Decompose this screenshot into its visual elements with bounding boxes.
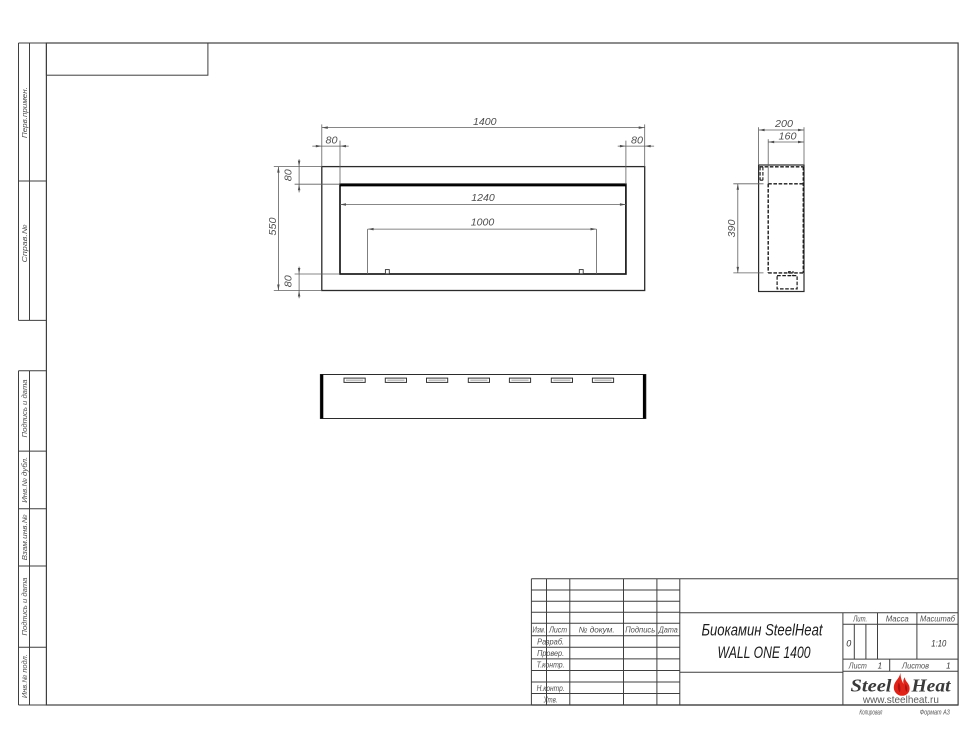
svg-text:1: 1 — [946, 661, 950, 670]
svg-text:1: 1 — [878, 661, 882, 670]
svg-text:Подпись и дата: Подпись и дата — [21, 577, 29, 635]
svg-text:80: 80 — [283, 169, 294, 181]
svg-text:Т.контр.: Т.контр. — [537, 661, 565, 670]
svg-text:550: 550 — [268, 217, 279, 235]
svg-text:Взам.инв.№: Взам.инв.№ — [22, 514, 29, 560]
svg-text:160: 160 — [779, 132, 797, 143]
svg-text:0: 0 — [846, 639, 851, 649]
svg-text:Листов: Листов — [901, 661, 929, 670]
svg-text:80: 80 — [326, 136, 338, 147]
svg-text:№ докум.: № докум. — [579, 626, 615, 635]
svg-text:Утв.: Утв. — [543, 695, 558, 704]
svg-text:1:10: 1:10 — [931, 638, 947, 649]
svg-text:Разраб.: Разраб. — [537, 637, 564, 646]
svg-text:Копировал: Копировал — [859, 710, 882, 717]
svg-text:Изм.: Изм. — [533, 626, 546, 635]
svg-text:WALL ONE 1400: WALL ONE 1400 — [718, 644, 811, 662]
svg-text:www.steelheat.ru: www.steelheat.ru — [862, 695, 939, 706]
svg-text:1400: 1400 — [473, 117, 497, 128]
svg-text:Лит.: Лит. — [852, 615, 867, 624]
svg-text:1000: 1000 — [471, 218, 495, 229]
svg-text:Лист: Лист — [548, 626, 567, 635]
svg-text:Дата: Дата — [658, 626, 678, 635]
svg-text:Масса: Масса — [886, 615, 910, 624]
svg-text:Steel: Steel — [851, 676, 892, 696]
svg-text:Провер.: Провер. — [537, 649, 564, 658]
svg-text:Heat: Heat — [910, 676, 951, 696]
svg-text:1240: 1240 — [471, 193, 495, 204]
svg-text:80: 80 — [283, 275, 294, 287]
svg-text:Подпись: Подпись — [625, 626, 655, 635]
svg-text:80: 80 — [631, 136, 643, 147]
svg-text:Формат А3: Формат А3 — [920, 710, 950, 717]
svg-text:200: 200 — [774, 119, 793, 130]
svg-text:Масштаб: Масштаб — [920, 615, 955, 624]
svg-text:Инв.№ подл.: Инв.№ подл. — [21, 654, 29, 698]
svg-text:Лист: Лист — [848, 661, 867, 670]
svg-text:Подпись и дата: Подпись и дата — [21, 379, 29, 437]
svg-text:Инв.№ дубл.: Инв.№ дубл. — [21, 457, 29, 503]
svg-text:Справ.№: Справ.№ — [22, 224, 29, 263]
svg-text:Перв.примен.: Перв.примен. — [22, 87, 29, 138]
svg-text:390: 390 — [727, 219, 738, 237]
svg-text:Н.контр.: Н.контр. — [537, 684, 565, 693]
svg-text:Биокамин SteelHeat: Биокамин SteelHeat — [702, 622, 824, 640]
